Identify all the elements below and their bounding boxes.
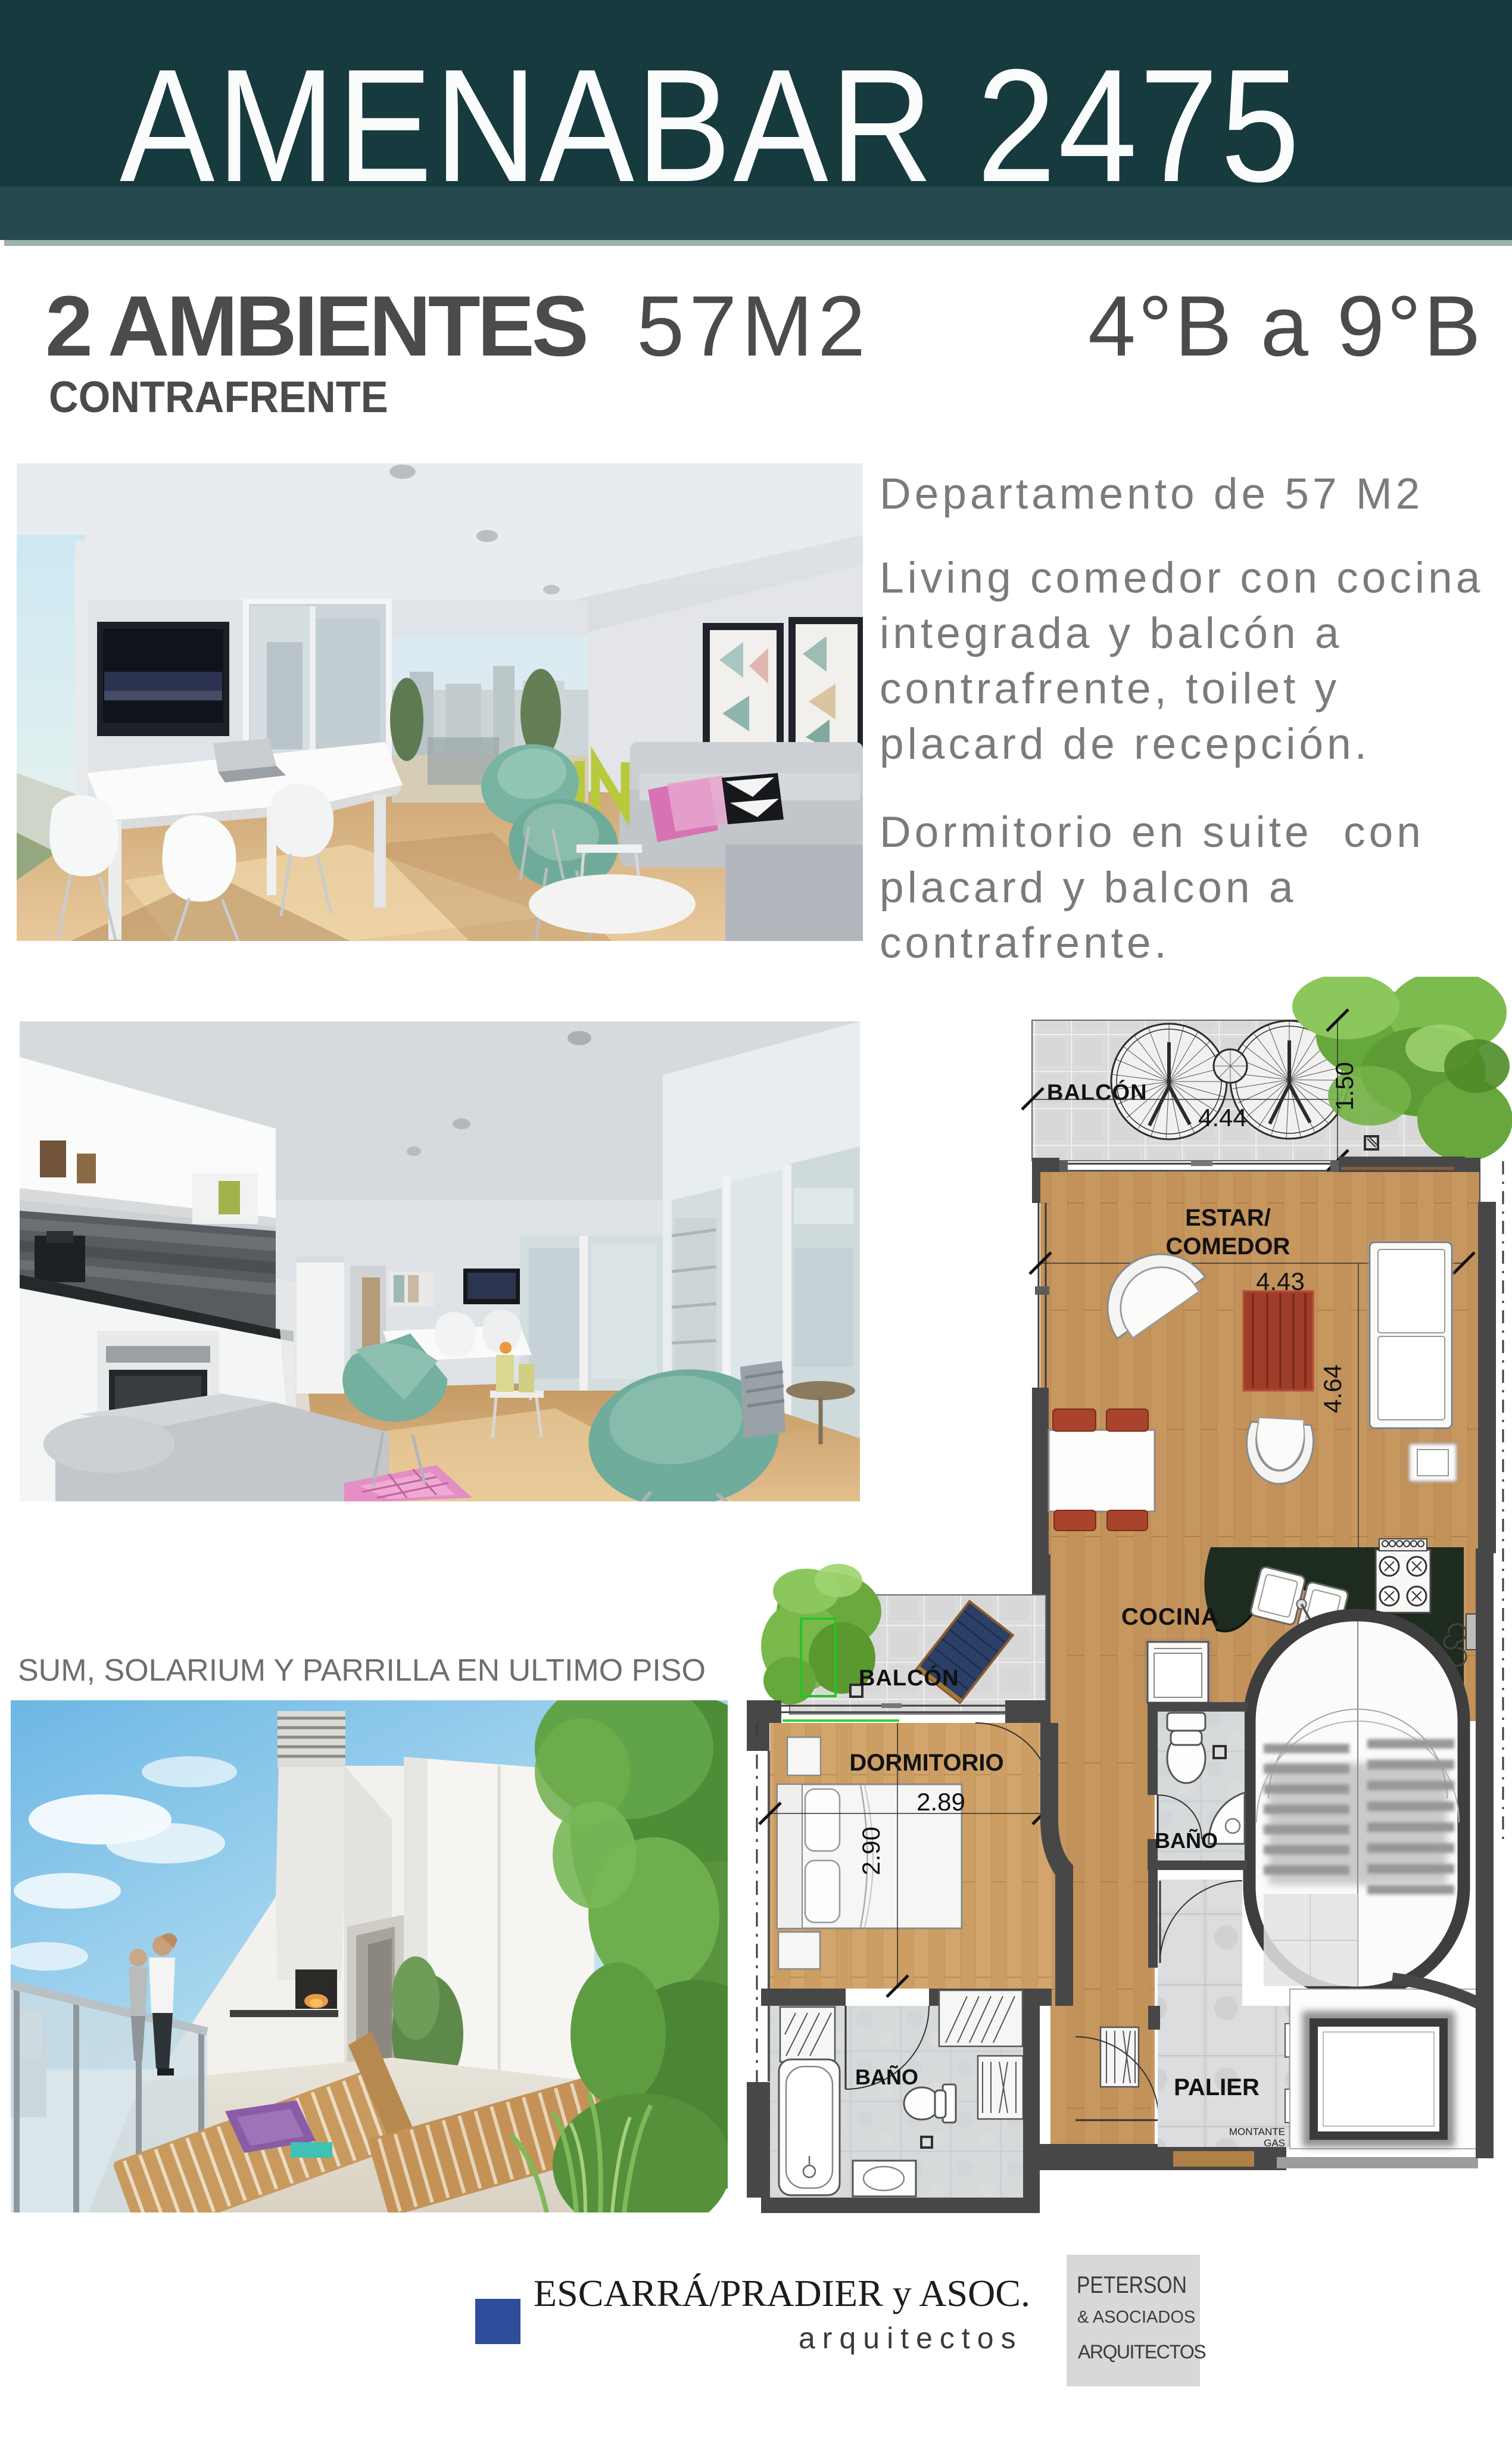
svg-text:1.50: 1.50 [1330, 1062, 1358, 1111]
svg-text:2.89: 2.89 [916, 1788, 965, 1816]
svg-text:BAÑO: BAÑO [1155, 1828, 1218, 1853]
svg-text:COCINA: COCINA [1121, 1604, 1219, 1630]
svg-text:4.44: 4.44 [1198, 1104, 1247, 1132]
svg-text:BAÑO: BAÑO [855, 2064, 918, 2089]
svg-text:ESTAR/: ESTAR/ [1185, 1205, 1271, 1231]
svg-text:DORMITORIO: DORMITORIO [849, 1750, 1003, 1776]
svg-text:MONTANTE: MONTANTE [1229, 2126, 1285, 2137]
svg-text:2.90: 2.90 [857, 1827, 885, 1875]
svg-text:4.64: 4.64 [1318, 1364, 1346, 1413]
svg-text:BALCÓN: BALCÓN [859, 1665, 959, 1691]
svg-text:PALIER: PALIER [1174, 2074, 1260, 2101]
svg-text:BALCÓN: BALCÓN [1047, 1079, 1148, 1105]
svg-text:COMEDOR: COMEDOR [1166, 1233, 1290, 1260]
